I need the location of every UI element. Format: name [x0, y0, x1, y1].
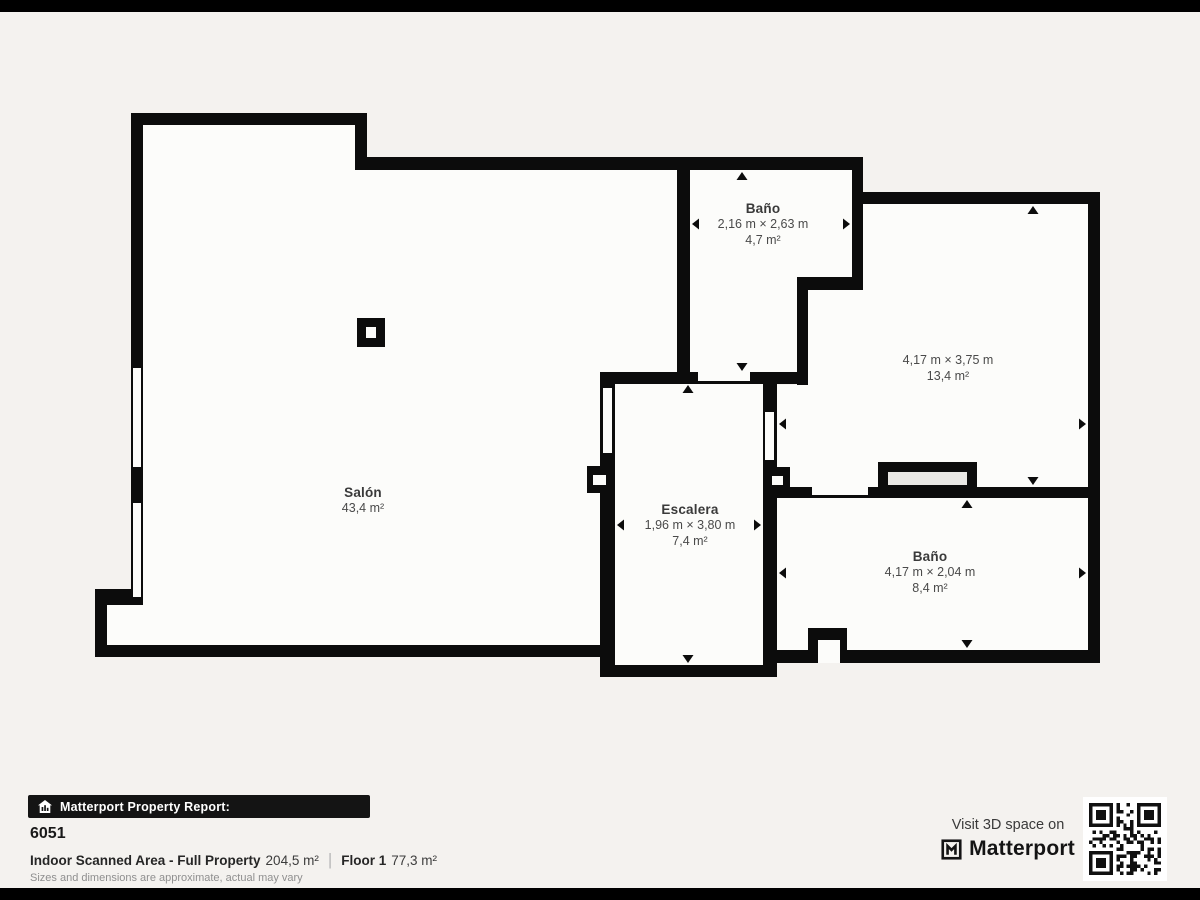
- area-summary: Indoor Scanned Area - Full Property 204,…: [30, 850, 437, 870]
- disclaimer-text: Sizes and dimensions are approximate, ac…: [30, 872, 303, 884]
- duct-opening: [818, 640, 840, 663]
- room-label-right-room: 4,17 m × 3,75 m 13,4 m²: [903, 353, 994, 384]
- room-area: 43,4 m²: [342, 501, 384, 517]
- window: [133, 503, 141, 597]
- column-core: [593, 475, 606, 485]
- room-label-salon: Salón 43,4 m²: [342, 485, 384, 517]
- room-title: Baño: [718, 201, 809, 217]
- room-area: 7,4 m²: [645, 534, 736, 550]
- house-chart-icon: [38, 800, 52, 813]
- qr-code: [1083, 797, 1167, 881]
- report-badge: Matterport Property Report:: [28, 795, 370, 818]
- salon-floor: [107, 600, 143, 645]
- column-core: [772, 476, 783, 485]
- room-label-bano-top: Baño 2,16 m × 2,63 m 4,7 m²: [718, 201, 809, 248]
- salon-floor: [605, 168, 677, 372]
- door-opening: [698, 372, 750, 381]
- room-label-escalera: Escalera 1,96 m × 3,80 m 7,4 m²: [645, 502, 736, 549]
- matterport-logo: Matterport: [903, 837, 1113, 861]
- room-title: Escalera: [645, 502, 736, 518]
- window: [133, 368, 141, 467]
- scanned-area-value: 204,5 m²: [266, 853, 319, 868]
- scanned-area-label: Indoor Scanned Area - Full Property: [30, 853, 261, 868]
- matterport-wordmark: Matterport: [969, 837, 1075, 861]
- separator: |: [328, 850, 332, 870]
- room-area: 13,4 m²: [903, 369, 994, 385]
- room-dimensions: 4,17 m × 2,04 m: [885, 565, 976, 581]
- property-id: 6051: [30, 825, 66, 843]
- floor-plan: [0, 0, 1200, 900]
- matterport-m-icon: [941, 839, 962, 860]
- salon-floor: [143, 125, 357, 645]
- qr-code-pattern: [1089, 803, 1161, 875]
- window: [765, 412, 774, 460]
- door-opening: [812, 487, 868, 495]
- room-dimensions: 4,17 m × 3,75 m: [903, 353, 994, 369]
- window: [603, 388, 612, 453]
- floor-value: 77,3 m²: [391, 853, 437, 868]
- fixture-fill: [888, 472, 967, 485]
- salon-floor: [357, 168, 605, 645]
- room-label-bano-bottom: Baño 4,17 m × 2,04 m 8,4 m²: [885, 549, 976, 596]
- visit-3d-block: Visit 3D space on Matterport: [903, 816, 1113, 861]
- room-area: 4,7 m²: [718, 233, 809, 249]
- room-dimensions: 1,96 m × 3,80 m: [645, 518, 736, 534]
- matterport-floor-plan-report: Salón 43,4 m² Baño 2,16 m × 2,63 m 4,7 m…: [0, 0, 1200, 900]
- room-dimensions: 2,16 m × 2,63 m: [718, 217, 809, 233]
- room-area: 8,4 m²: [885, 581, 976, 597]
- visit-3d-text: Visit 3D space on: [903, 816, 1113, 834]
- column-core: [366, 327, 376, 338]
- room-title: Baño: [885, 549, 976, 565]
- floor-label: Floor 1: [341, 853, 386, 868]
- report-badge-label: Matterport Property Report:: [60, 800, 230, 814]
- room-title: Salón: [342, 485, 384, 501]
